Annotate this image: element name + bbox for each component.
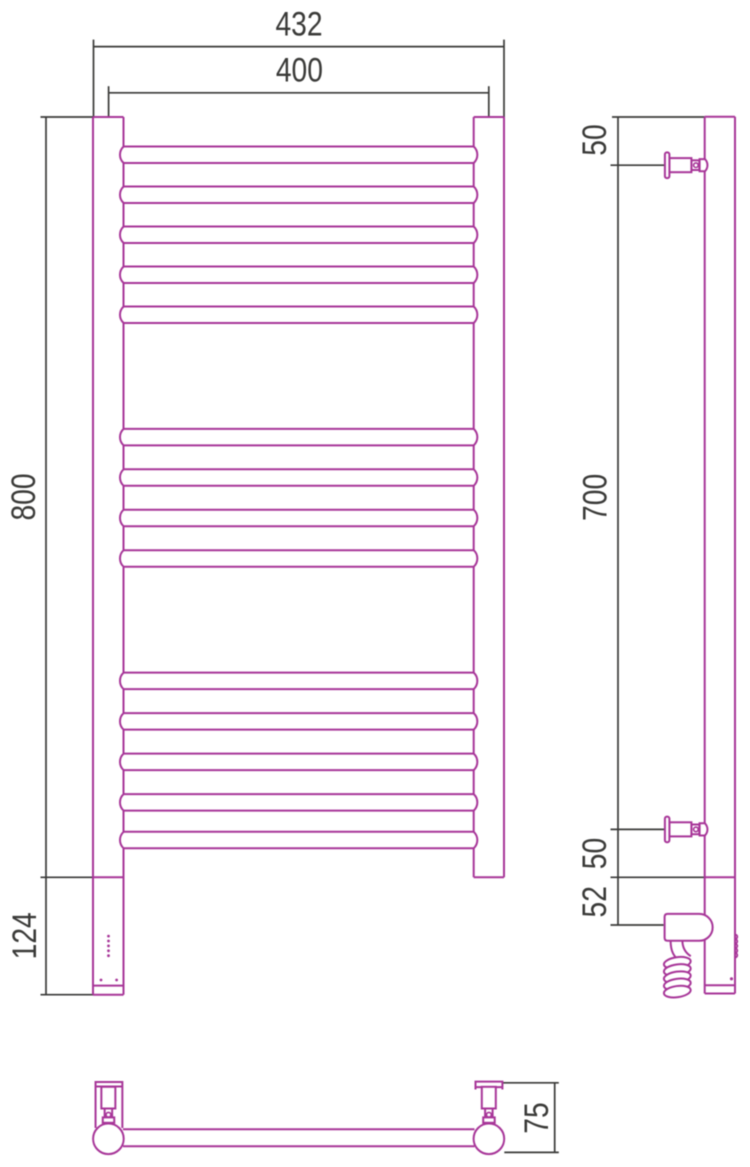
svg-text:50: 50 [576, 838, 614, 869]
svg-text:124: 124 [6, 912, 44, 959]
svg-text:700: 700 [576, 474, 614, 521]
svg-text:75: 75 [517, 1102, 555, 1133]
svg-text:52: 52 [576, 886, 614, 917]
svg-text:400: 400 [276, 51, 323, 89]
svg-text:800: 800 [4, 473, 42, 520]
svg-text:432: 432 [275, 5, 322, 43]
svg-text:50: 50 [576, 124, 614, 155]
